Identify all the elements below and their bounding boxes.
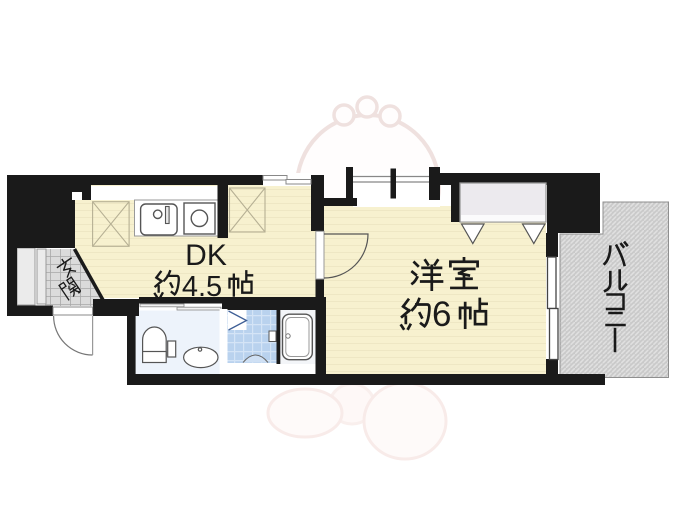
svg-text:6: 6 [432,295,451,334]
svg-text:4.5: 4.5 [182,271,222,303]
svg-text:DK: DK [185,239,227,272]
